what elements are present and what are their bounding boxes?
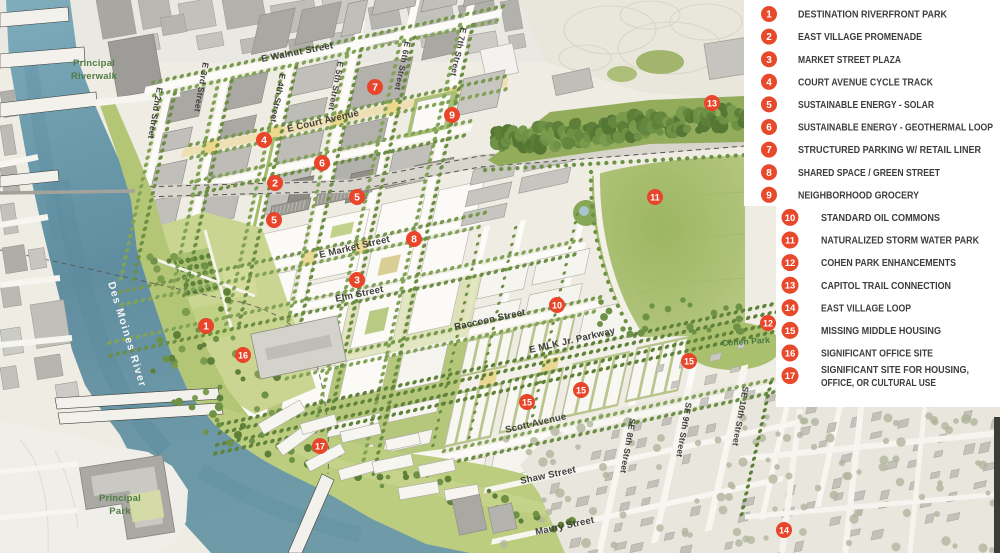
svg-text:Principal: Principal [99, 493, 141, 504]
svg-text:11: 11 [650, 193, 660, 203]
svg-text:4: 4 [261, 135, 267, 147]
svg-text:6: 6 [766, 123, 772, 134]
svg-text:17: 17 [315, 442, 325, 452]
svg-text:8: 8 [766, 168, 772, 179]
svg-text:5: 5 [354, 192, 360, 204]
svg-text:2: 2 [766, 32, 772, 43]
svg-text:SUSTAINABLE ENERGY - SOLAR: SUSTAINABLE ENERGY - SOLAR [798, 100, 935, 111]
svg-text:2: 2 [272, 178, 278, 190]
svg-text:13: 13 [785, 281, 796, 292]
svg-text:3: 3 [766, 55, 772, 66]
svg-text:4: 4 [766, 77, 772, 88]
svg-text:CAPITOL TRAIL CONNECTION: CAPITOL TRAIL CONNECTION [821, 281, 951, 292]
svg-text:5: 5 [271, 215, 277, 227]
svg-text:NATURALIZED STORM WATER PARK: NATURALIZED STORM WATER PARK [821, 236, 980, 247]
svg-text:7: 7 [372, 82, 378, 94]
svg-text:SHARED SPACE / GREEN STREET: SHARED SPACE / GREEN STREET [798, 168, 940, 179]
svg-text:13: 13 [707, 99, 717, 109]
svg-text:Principal: Principal [73, 58, 115, 69]
svg-text:6: 6 [319, 158, 325, 170]
svg-text:7: 7 [766, 145, 772, 156]
svg-text:15: 15 [785, 326, 796, 337]
svg-text:OFFICE, OR CULTURAL USE: OFFICE, OR CULTURAL USE [821, 378, 936, 389]
svg-text:9: 9 [766, 190, 772, 201]
svg-text:15: 15 [576, 386, 586, 396]
svg-text:10: 10 [785, 213, 796, 224]
svg-text:MISSING MIDDLE HOUSING: MISSING MIDDLE HOUSING [821, 326, 941, 337]
svg-text:1: 1 [203, 321, 209, 333]
svg-text:STRUCTURED PARKING W/ RETAIL L: STRUCTURED PARKING W/ RETAIL LINER [798, 145, 982, 156]
svg-text:8: 8 [411, 234, 417, 246]
svg-text:EAST VILLAGE LOOP: EAST VILLAGE LOOP [821, 303, 911, 314]
svg-text:12: 12 [785, 258, 796, 269]
svg-text:NEIGHBORHOOD GROCERY: NEIGHBORHOOD GROCERY [798, 190, 919, 201]
svg-text:3: 3 [354, 275, 360, 287]
svg-text:SIGNIFICANT SITE FOR HOUSING,: SIGNIFICANT SITE FOR HOUSING, [821, 365, 969, 376]
svg-text:Park: Park [109, 506, 131, 517]
svg-text:STANDARD OIL COMMONS: STANDARD OIL COMMONS [821, 213, 940, 224]
svg-text:16: 16 [785, 348, 796, 359]
svg-text:12: 12 [763, 319, 773, 329]
svg-text:15: 15 [522, 398, 532, 408]
svg-text:14: 14 [779, 526, 789, 536]
svg-text:14: 14 [785, 303, 796, 314]
svg-text:16: 16 [238, 351, 248, 361]
svg-text:1: 1 [766, 10, 772, 21]
svg-text:11: 11 [785, 235, 796, 246]
svg-text:COHEN PARK ENHANCEMENTS: COHEN PARK ENHANCEMENTS [821, 258, 956, 269]
svg-text:MARKET STREET PLAZA: MARKET STREET PLAZA [798, 55, 901, 66]
svg-text:17: 17 [785, 371, 796, 382]
svg-text:Riverwalk: Riverwalk [71, 71, 118, 82]
svg-text:9: 9 [449, 110, 455, 122]
svg-text:10: 10 [552, 301, 562, 311]
svg-text:15: 15 [684, 357, 694, 367]
svg-text:5: 5 [766, 100, 772, 111]
svg-text:COURT AVENUE CYCLE TRACK: COURT AVENUE CYCLE TRACK [798, 77, 934, 88]
svg-text:DESTINATION RIVERFRONT PARK: DESTINATION RIVERFRONT PARK [798, 10, 948, 21]
svg-text:SIGNIFICANT OFFICE SITE: SIGNIFICANT OFFICE SITE [821, 349, 933, 360]
svg-text:SUSTAINABLE ENERGY - GEOTHERMA: SUSTAINABLE ENERGY - GEOTHERMAL LOOP [798, 123, 993, 134]
svg-text:EAST VILLAGE PROMENADE: EAST VILLAGE PROMENADE [798, 32, 922, 43]
